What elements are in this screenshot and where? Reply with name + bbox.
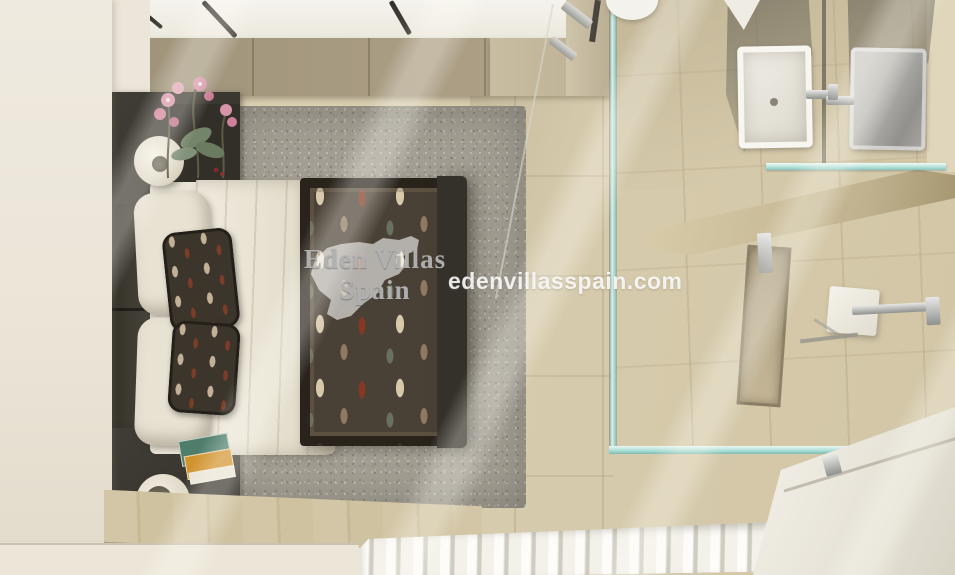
- watermark-brand: Eden Villas Spain: [296, 244, 454, 306]
- watermark-brand-line1: Eden Villas: [296, 244, 454, 275]
- watermark-brand-line2: Spain: [296, 275, 454, 306]
- cream-side-wall: [0, 0, 112, 575]
- room-render: Eden Villas Spain edenvillasspain.com: [0, 0, 955, 575]
- watermark-website: edenvillasspain.com: [448, 268, 682, 295]
